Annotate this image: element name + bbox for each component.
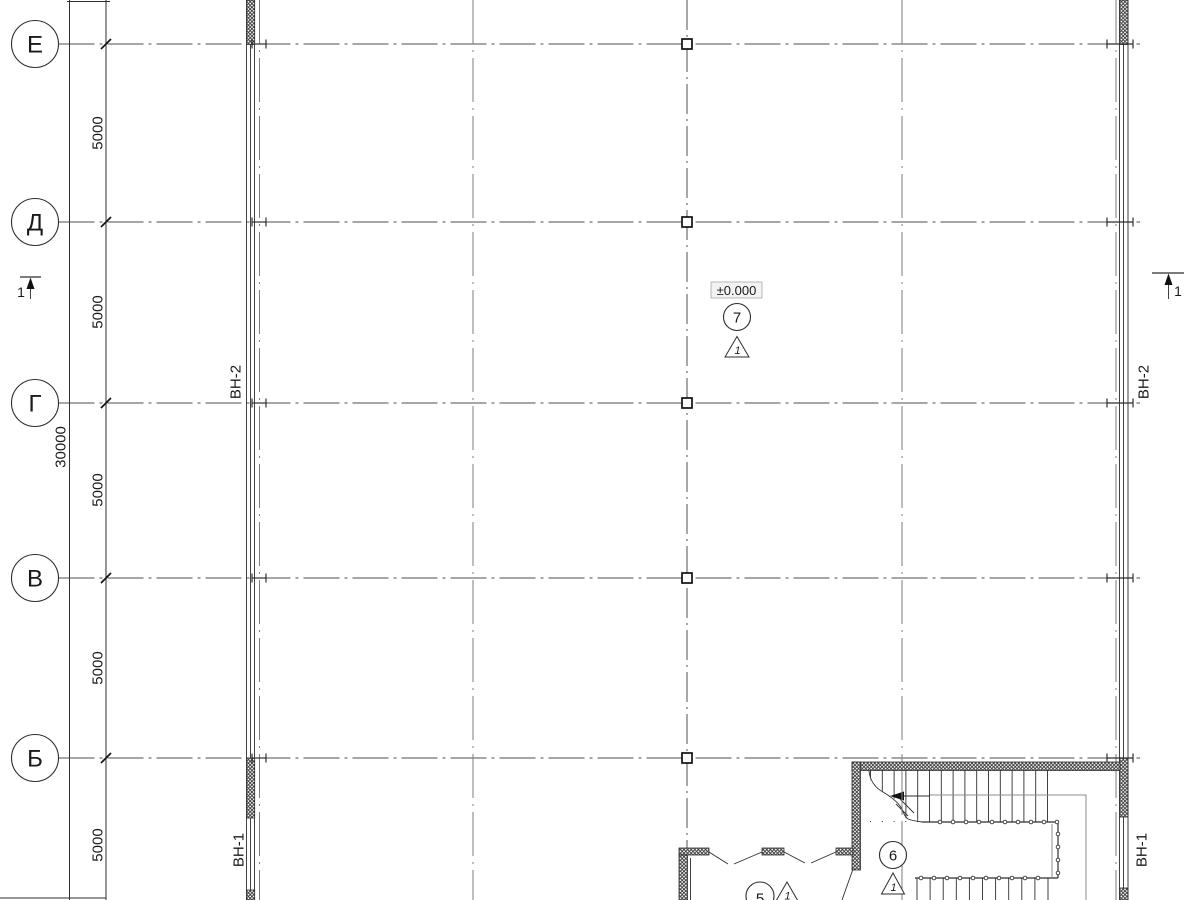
curtain-wall-left [247, 0, 260, 900]
vertical-grid-lines [473, 0, 902, 900]
baluster [932, 876, 936, 880]
baluster [1042, 820, 1046, 824]
railing-balusters [919, 820, 1060, 880]
section-mark-label: 1 [1174, 283, 1182, 299]
stair-treads-lower-flight [917, 878, 1048, 900]
stair-top-wall [852, 762, 1120, 771]
section-mark-right: 1 [1152, 273, 1184, 299]
wall-hatch-segment [247, 890, 255, 900]
wall-segment [679, 855, 688, 900]
baluster [1023, 876, 1027, 880]
baluster [1010, 876, 1014, 880]
wall-hatch-segment [247, 0, 255, 45]
room-marker-5: 5 1 [746, 882, 798, 900]
baluster [945, 876, 949, 880]
baluster [1029, 820, 1033, 824]
wall-type-labels: ВН-2 ВН-1 ВН-2 ВН-1 [228, 365, 1153, 867]
opening-line [811, 852, 836, 863]
baluster [1056, 858, 1060, 862]
dimension-label: 5000 [90, 651, 107, 684]
opening-line [709, 852, 728, 864]
baluster [1056, 871, 1060, 875]
detail-triangle-label: 1 [734, 345, 740, 357]
baluster [971, 876, 975, 880]
section-mark-label: 1 [17, 284, 25, 300]
column-marker [682, 398, 692, 408]
detail-triangle-label: 1 [890, 882, 896, 894]
wall-label-vn2-left: ВН-2 [228, 365, 245, 399]
dimension-label: 5000 [90, 116, 107, 149]
axis-bubble-v: В [12, 555, 59, 602]
baluster [1056, 832, 1060, 836]
baluster [1056, 845, 1060, 849]
axis-bubble-g: Г [12, 380, 59, 427]
section-arrow-icon [1165, 274, 1173, 286]
section-arrow-icon [27, 278, 35, 290]
axis-bubbles: Е Д Г В Б [12, 21, 59, 782]
baluster [997, 876, 1001, 880]
detail-triangle-label: 1 [784, 891, 790, 900]
wall-stub [679, 848, 709, 855]
baluster [1055, 820, 1059, 824]
axis-bubble-label: Е [27, 32, 43, 59]
floor-plan-canvas: 5000 5000 5000 5000 5000 30000 Е Д Г В Б [0, 0, 1200, 900]
wall-stub [836, 848, 853, 855]
baluster [977, 820, 981, 824]
level-mark-label: ±0.000 [717, 283, 757, 298]
dimension-label: 5000 [90, 828, 107, 861]
door-leaf-line [842, 869, 853, 900]
dimension-label: 5000 [90, 473, 107, 506]
axis-bubble-label: Г [29, 391, 42, 418]
section-mark-left: 1 [17, 277, 41, 300]
axis-bubble-label: Д [27, 210, 43, 237]
axis-bubble-b: Б [12, 735, 59, 782]
baluster [951, 820, 955, 824]
axis-bubble-label: Б [27, 746, 43, 773]
wall-hatch-segment [1120, 758, 1129, 817]
baluster [964, 820, 968, 824]
wall-hatch-segment [1120, 0, 1129, 45]
wall-hatch-segment [1120, 888, 1129, 900]
axis-bubble-label: В [27, 566, 43, 593]
room-marker-7: 7 1 [724, 304, 751, 358]
wall-stub [762, 848, 784, 855]
axis-bubble-d: Д [12, 199, 59, 246]
baluster [958, 876, 962, 880]
floor-plan-sheet: 5000 5000 5000 5000 5000 30000 Е Д Г В Б [0, 0, 1200, 900]
axis-bubble-e: Е [12, 21, 59, 68]
dimension-label-total: 30000 [53, 426, 70, 468]
baluster [1003, 820, 1007, 824]
column-marker [682, 217, 692, 227]
opening-line [784, 852, 805, 863]
wall-label-vn2-right: ВН-2 [1136, 365, 1153, 399]
room-marker-label: 6 [889, 848, 897, 865]
baluster [938, 820, 942, 824]
baluster [1016, 820, 1020, 824]
wall-label-vn1-left: ВН-1 [231, 833, 248, 867]
wall-label-vn1-right: ВН-1 [1134, 833, 1151, 867]
column-marker [682, 39, 692, 49]
baluster [984, 876, 988, 880]
column-marker [682, 573, 692, 583]
room-marker-label: 5 [756, 891, 764, 900]
baluster [1036, 876, 1040, 880]
horizontal-axis-lines [59, 44, 1141, 758]
dimension-label: 5000 [90, 295, 107, 328]
column-marker [682, 753, 692, 763]
baluster [919, 876, 923, 880]
baluster [990, 820, 994, 824]
wall-hatch-segment [247, 758, 255, 818]
opening-line [734, 852, 762, 864]
level-annotation: ±0.000 [711, 282, 762, 298]
room-marker-label: 7 [733, 310, 741, 327]
